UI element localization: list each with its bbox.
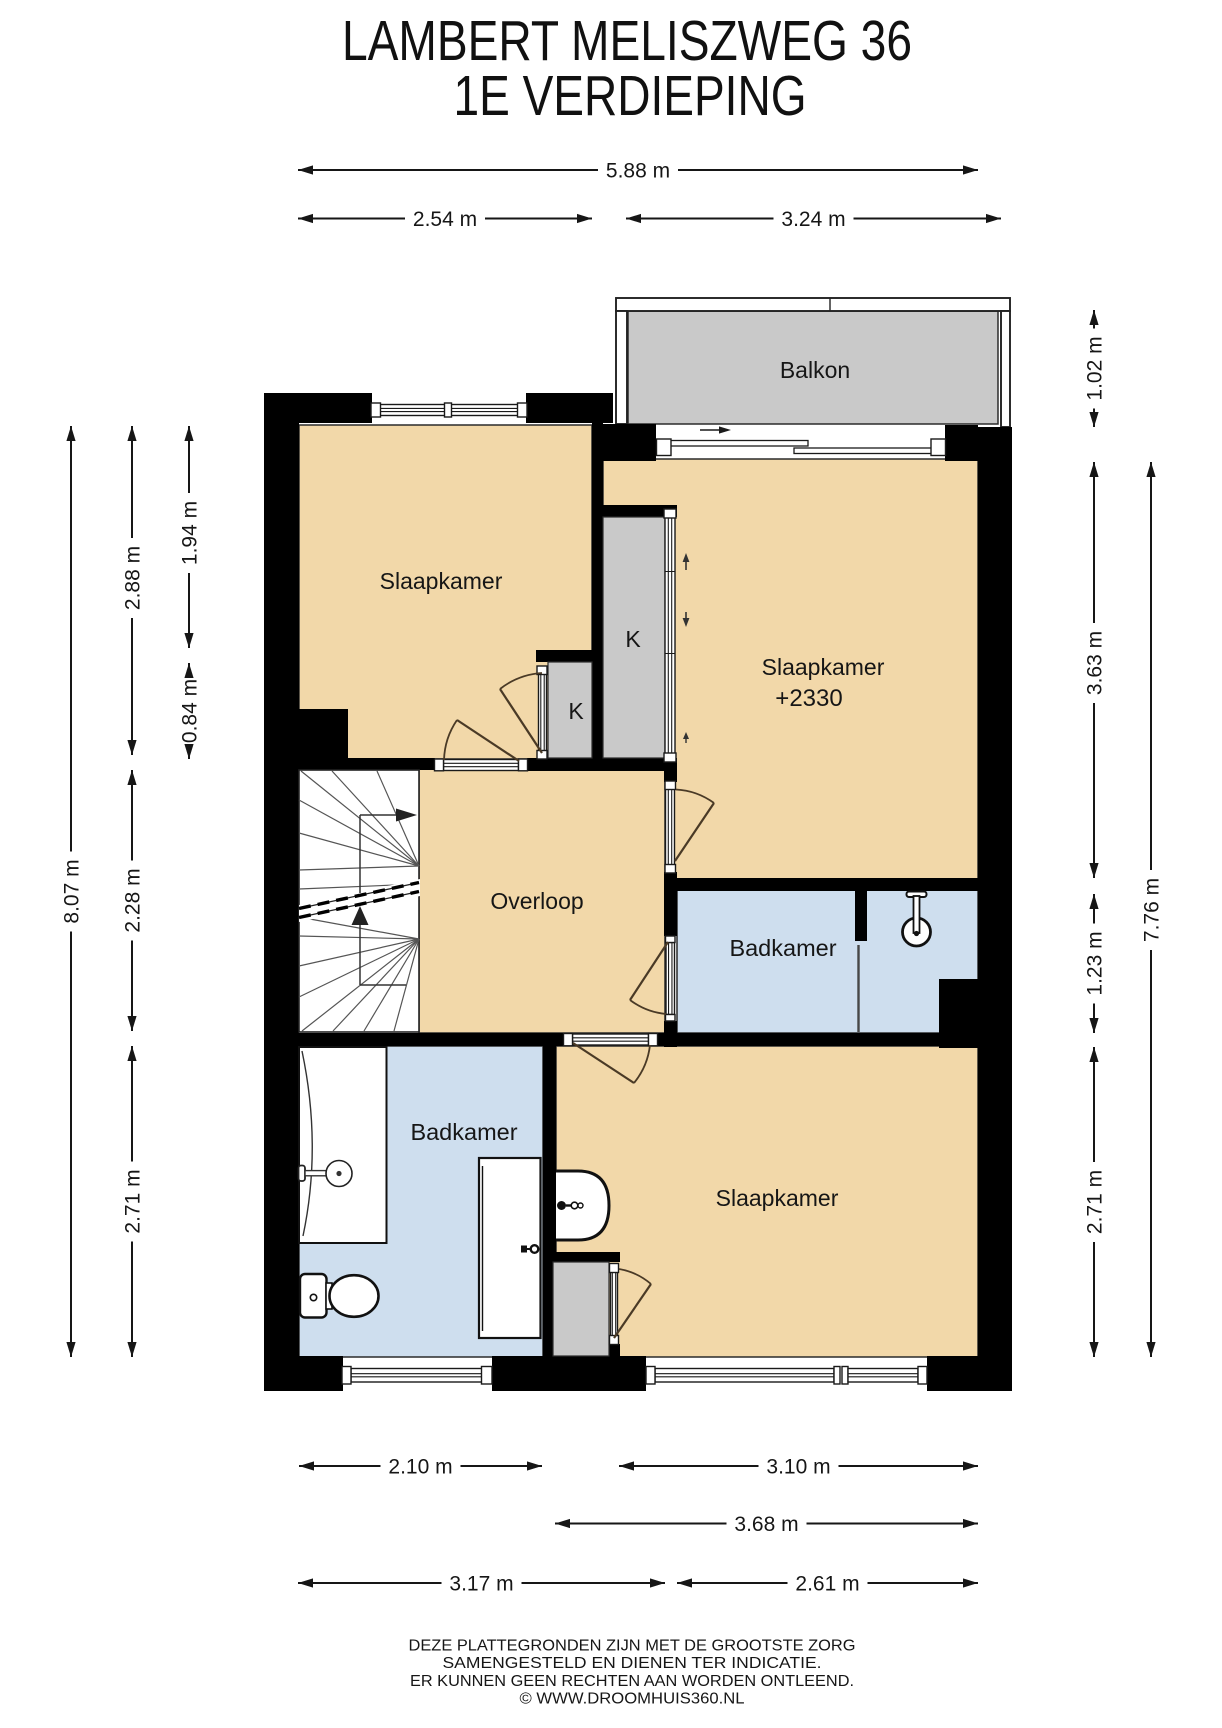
- svg-text:3.24 m: 3.24 m: [781, 208, 845, 231]
- svg-text:Overloop: Overloop: [490, 888, 583, 914]
- svg-text:8.07 m: 8.07 m: [61, 859, 84, 923]
- svg-text:1.02 m: 1.02 m: [1084, 336, 1107, 400]
- svg-text:Badkamer: Badkamer: [410, 1119, 517, 1145]
- svg-text:Slaapkamer: Slaapkamer: [716, 1185, 839, 1211]
- svg-text:K: K: [568, 698, 584, 724]
- svg-text:2.61 m: 2.61 m: [795, 1573, 859, 1596]
- svg-text:Slaapkamer: Slaapkamer: [762, 654, 885, 680]
- svg-text:3.68 m: 3.68 m: [734, 1513, 798, 1536]
- svg-text:7.76 m: 7.76 m: [1141, 878, 1164, 942]
- svg-text:SAMENGESTELD EN DIENEN TER IND: SAMENGESTELD EN DIENEN TER INDICATIE.: [443, 1655, 822, 1672]
- svg-text:1.23 m: 1.23 m: [1084, 931, 1107, 995]
- svg-text:1.94 m: 1.94 m: [179, 501, 202, 565]
- svg-text:2.10 m: 2.10 m: [388, 1456, 452, 1479]
- svg-text:© WWW.DROOMHUIS360.NL: © WWW.DROOMHUIS360.NL: [520, 1691, 745, 1708]
- svg-text:1E VERDIEPING: 1E VERDIEPING: [454, 64, 807, 128]
- svg-text:2.54 m: 2.54 m: [413, 208, 477, 231]
- svg-text:Badkamer: Badkamer: [729, 935, 836, 961]
- svg-text:2.28 m: 2.28 m: [122, 868, 145, 932]
- svg-text:K: K: [625, 626, 641, 652]
- svg-text:3.17 m: 3.17 m: [449, 1573, 513, 1596]
- svg-text:Slaapkamer: Slaapkamer: [380, 568, 503, 594]
- svg-text:2.88 m: 2.88 m: [122, 546, 145, 610]
- svg-text:2.71 m: 2.71 m: [122, 1169, 145, 1233]
- svg-text:DEZE PLATTEGRONDEN ZIJN MET DE: DEZE PLATTEGRONDEN ZIJN MET DE GROOTSTE …: [409, 1638, 856, 1655]
- svg-text:3.63 m: 3.63 m: [1084, 631, 1107, 695]
- svg-text:Balkon: Balkon: [780, 357, 850, 383]
- svg-text:ER KUNNEN GEEN RECHTEN AAN WOR: ER KUNNEN GEEN RECHTEN AAN WORDEN ONTLEE…: [410, 1673, 854, 1690]
- svg-text:+2330: +2330: [775, 685, 842, 712]
- svg-text:3.10 m: 3.10 m: [766, 1456, 830, 1479]
- svg-text:0.84 m: 0.84 m: [179, 679, 202, 743]
- svg-text:2.71 m: 2.71 m: [1084, 1170, 1107, 1234]
- svg-text:5.88 m: 5.88 m: [606, 160, 670, 183]
